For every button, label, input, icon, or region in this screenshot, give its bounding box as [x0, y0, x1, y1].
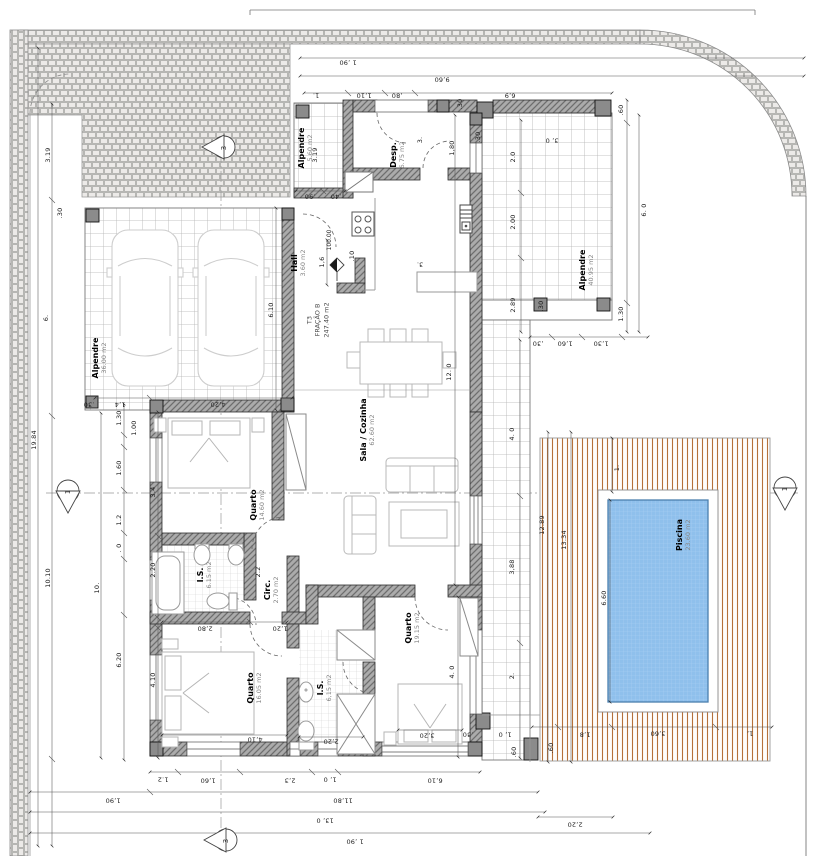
- window: [150, 655, 162, 720]
- boundary-wall-corner: [640, 30, 806, 196]
- wardrobe: [460, 598, 478, 656]
- terrace-strip-floor: [482, 320, 530, 760]
- door-arc: [415, 597, 448, 630]
- section-number: 3: [220, 146, 228, 150]
- car: [193, 230, 269, 386]
- door-arc: [250, 624, 282, 656]
- plan-drawing: 1 1 3 3: [0, 0, 816, 856]
- sink: [299, 682, 313, 702]
- section-number: 1: [781, 487, 789, 491]
- door-arc: [423, 141, 450, 168]
- section-number: 3: [222, 839, 230, 843]
- window: [150, 438, 162, 482]
- section-marker-left: 1: [56, 480, 80, 513]
- sofa-large: [386, 458, 458, 492]
- shelf: [337, 630, 375, 660]
- section-marker-bottom: 3: [204, 828, 237, 852]
- dining-table: [360, 342, 442, 384]
- door-arc: [377, 113, 407, 143]
- road-edge-line: [250, 10, 755, 15]
- rear-porch-floor: [482, 113, 612, 300]
- toilet: [298, 721, 314, 750]
- shower: [337, 694, 375, 754]
- sofa-small: [344, 496, 376, 554]
- window: [187, 742, 240, 756]
- tall-appliance: [460, 205, 472, 233]
- section-marker-right: 1: [773, 477, 797, 510]
- bed: [162, 639, 254, 747]
- door-opening: [375, 100, 428, 112]
- bathtub: [152, 552, 184, 614]
- kitchen-island: [417, 272, 477, 292]
- wardrobe: [286, 414, 306, 490]
- sink: [194, 544, 210, 565]
- pool-area: [540, 438, 770, 761]
- floor-plan: 1 1 3 3 Alpendre 5.60 m2 Desp. 6.75 m2 H…: [0, 0, 816, 856]
- window: [470, 496, 482, 544]
- door-arc: [303, 214, 336, 247]
- boundary-wall-left: [10, 30, 28, 856]
- stove: [352, 212, 374, 236]
- section-number: 1: [64, 490, 72, 494]
- toilet: [207, 593, 237, 610]
- bed: [384, 684, 462, 745]
- car: [107, 230, 183, 386]
- paved-court: [28, 44, 290, 197]
- pool-water: [608, 500, 708, 702]
- sink: [228, 544, 244, 565]
- bed: [154, 418, 264, 488]
- door-arc: [252, 517, 284, 549]
- boundary-wall-top: [20, 30, 640, 44]
- window: [470, 143, 482, 173]
- level-marker: [330, 258, 344, 281]
- window: [318, 742, 338, 756]
